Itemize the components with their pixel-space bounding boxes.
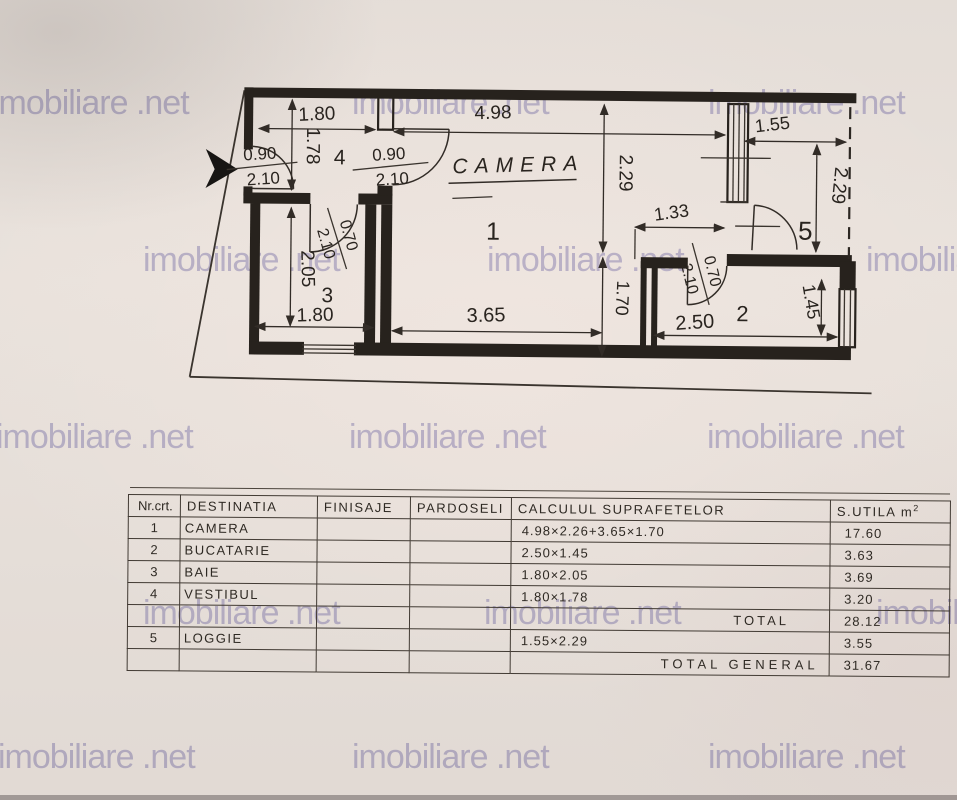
cell-destinatia: BUCATARIE [180,539,317,562]
cell-destinatia: CAMERA [180,517,317,540]
total-general-label: TOTAL GENERAL [510,652,829,677]
dim-nook-width: 1.33 [653,200,690,224]
cell-nr: 3 [128,561,180,583]
dim-vestibul-height: 1.78 [302,127,323,164]
cell-calcul: 1.80×1.78 [511,586,830,611]
loggie-door-leaf [752,205,754,250]
cell-suprafata: 3.69 [830,566,950,589]
cell-finisaje [316,606,409,629]
cell-pardoseli [409,607,510,630]
cell-suprafata: 17.60 [830,522,950,545]
room-number-baie: 3 [321,284,333,307]
cell-nr [127,648,179,670]
total-value: 28.12 [829,610,949,633]
svg-text:2.10: 2.10 [375,169,409,190]
room-number-bucatarie: 2 [736,301,748,326]
cell-pardoseli [410,541,511,564]
dim-camera-width-bottom: 3.65 [466,304,505,327]
dim-bucatarie-width: 2.50 [675,311,715,335]
col-header-destinatia: DESTINATIA [180,495,317,518]
cell-nr: 5 [127,626,179,648]
cell-calcul: 1.80×2.05 [511,564,830,589]
cell-finisaje [316,628,409,651]
svg-text:0.90: 0.90 [372,144,406,165]
cell-finisaje [316,650,409,673]
dim-camera-lower-height: 1.70 [612,280,634,316]
floor-plan: 1.80 4.98 1.55 1.78 2.29 2.29 1.33 2.05 … [0,0,957,800]
cell-nr: 4 [128,583,180,605]
loggie-door-arc [754,205,797,249]
cell-nr [127,605,179,627]
dim-vestibul-width: 1.80 [298,103,336,126]
cell-pardoseli [410,585,511,608]
col-header-nr: Nr.crt. [128,495,180,517]
cell-calcul: 4.98×2.26+3.65×1.70 [511,520,830,545]
cell-nr: 2 [128,539,180,561]
cell-destinatia: BAIE [180,561,317,584]
svg-text:0.90: 0.90 [243,144,277,165]
cell-pardoseli [410,563,511,586]
dim-loggie-height: 2.29 [827,166,851,205]
total-label: TOTAL [510,608,829,633]
cell-calcul: 1.55×2.29 [510,630,829,655]
cell-calcul: 2.50×1.45 [511,542,830,567]
svg-text:2.10: 2.10 [246,168,280,189]
cell-destinatia: LOGGIE [179,627,316,650]
room-number-camera: 1 [486,218,500,246]
cell-finisaje [317,518,410,541]
dim-camera-width-top: 4.98 [474,102,512,124]
surface-table-wrap: Nr.crt. DESTINATIA FINISAJE PARDOSELI CA… [127,494,951,677]
dimension-labels: 1.80 4.98 1.55 1.78 2.29 2.29 1.33 2.05 … [295,100,851,336]
cell-suprafata: 3.55 [829,632,949,655]
dim-camera-height: 2.29 [614,154,635,191]
total-general-value: 31.67 [829,654,949,677]
cell-nr: 1 [128,517,180,539]
camera-door-size: 0.90 2.10 [351,143,430,191]
cell-finisaje [317,584,410,607]
cell-suprafata: 3.20 [830,588,950,611]
col-header-pardoseli: PARDOSELI [410,497,511,520]
room-title-camera: CAMERA [452,152,584,178]
cell-pardoseli [409,629,510,652]
dim-loggie-width: 1.55 [754,113,791,137]
room-number-vestibul: 4 [334,146,346,169]
cell-finisaje [317,562,410,585]
dim-baie-height: 2.05 [296,250,318,288]
scanned-floor-plan-sheet: imobiliare .net imobiliare .net imobilia… [0,0,957,800]
col-header-calculul: CALCULUL SUPRAFETELOR [511,498,830,523]
dim-baie-width: 1.80 [296,305,334,327]
cell-destinatia [179,649,316,672]
room-number-loggie: 5 [798,216,813,246]
cell-suprafata: 3.63 [830,544,950,567]
dim-bucatarie-height: 1.45 [799,283,824,321]
cell-pardoseli [410,519,511,542]
cell-pardoseli [409,651,510,674]
scan-bottom-edge [0,795,957,800]
camera-door-leaf [393,129,449,130]
bucatarie-door-size: 0.70 2.10 [673,238,728,310]
cell-destinatia: VESTIBUL [180,583,317,606]
cell-finisaje [317,540,410,563]
svg-text:2.10: 2.10 [677,262,701,296]
cell-destinatia [179,605,316,628]
bucatarie-window-icon [839,289,856,347]
col-header-sutila: S.UTILA m2 [830,500,950,523]
col-header-finisaje: FINISAJE [317,496,410,519]
surface-calculation-table: Nr.crt. DESTINATIA FINISAJE PARDOSELI CA… [127,494,951,677]
baie-window-icon [302,345,356,346]
